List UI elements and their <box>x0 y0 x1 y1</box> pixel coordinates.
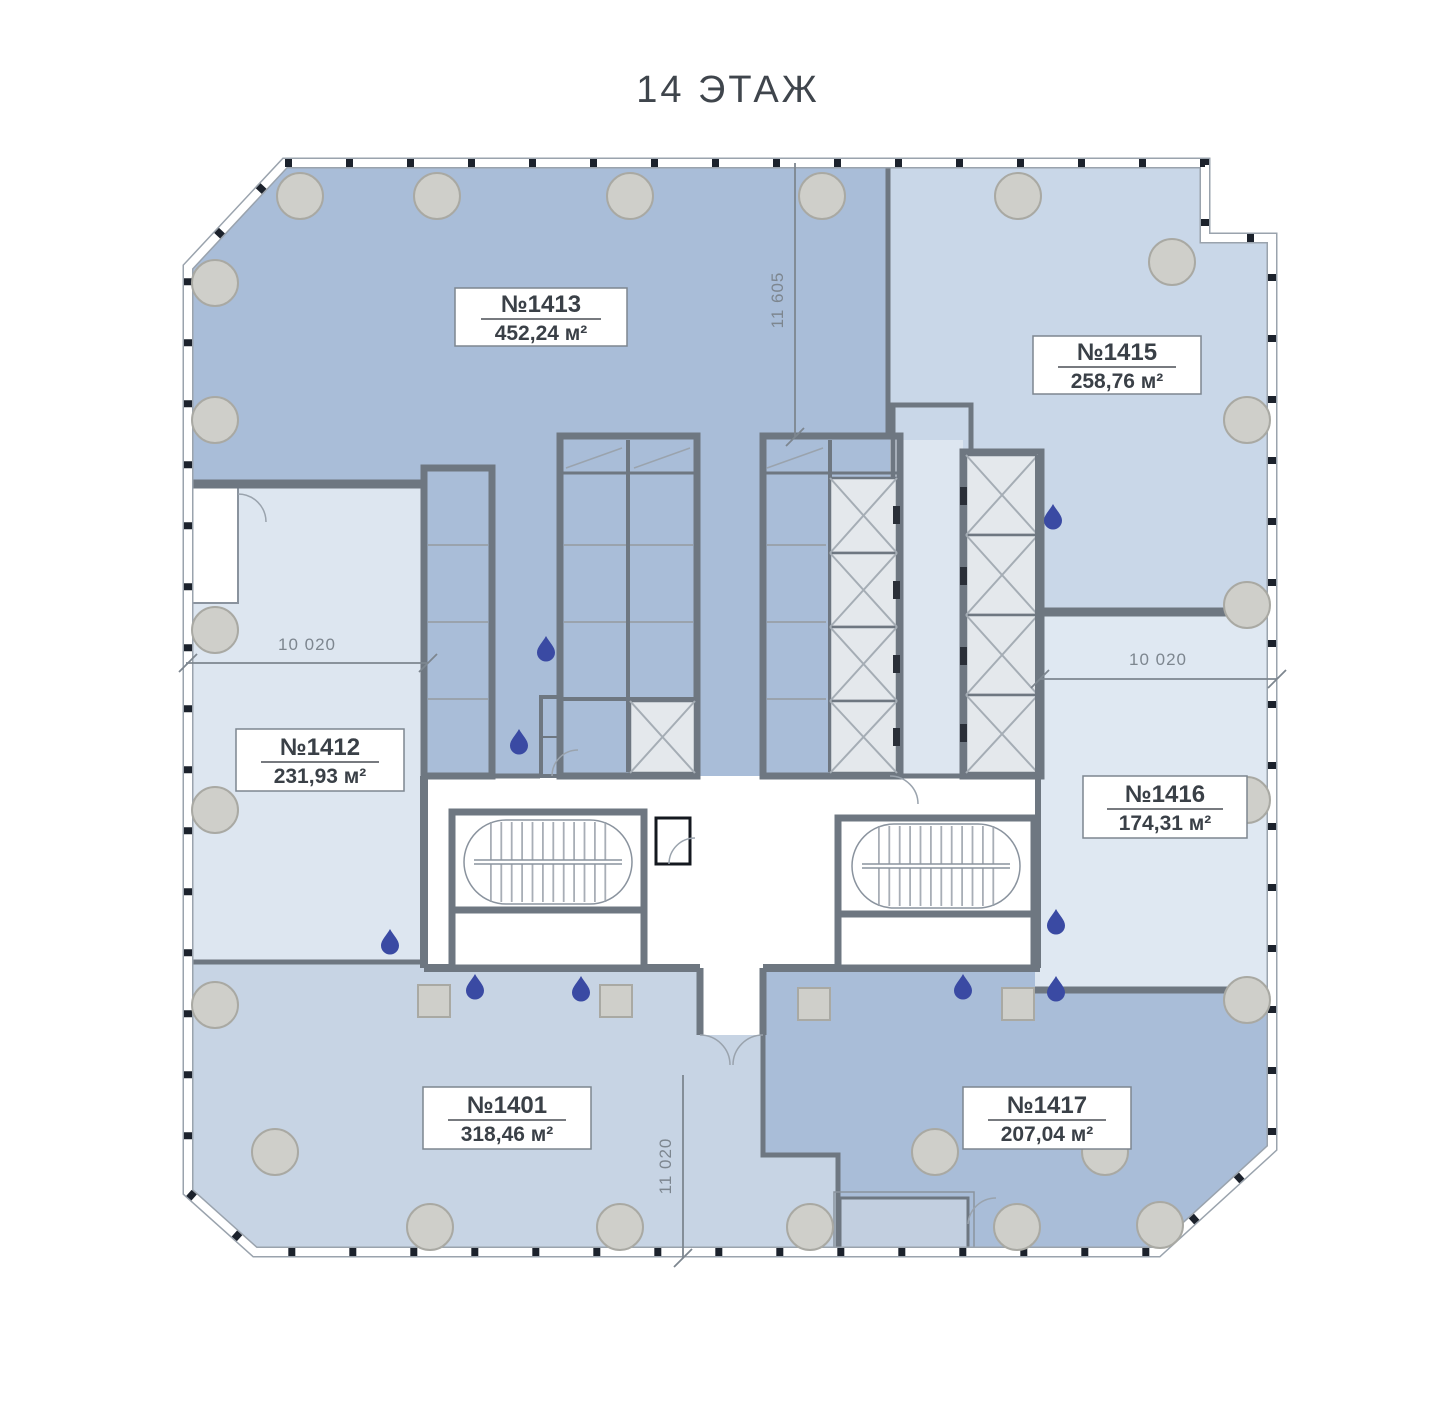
svg-text:№1412: №1412 <box>280 734 360 761</box>
stairwell-east <box>838 818 1034 914</box>
terrace-room <box>834 1192 974 1252</box>
column <box>799 173 845 219</box>
unit-label-1413[interactable]: №1413 452,24 м² <box>455 288 627 346</box>
column <box>252 1129 298 1175</box>
column <box>994 1204 1040 1250</box>
entrance-vestibule <box>700 968 763 1035</box>
column <box>1224 582 1270 628</box>
elevator-door <box>960 487 967 505</box>
dimension-right: 10 020 <box>1129 650 1187 669</box>
dimension-bottom: 11 020 <box>656 1138 675 1195</box>
page-title: 14 ЭТАЖ <box>636 69 820 111</box>
square-column <box>600 985 632 1017</box>
column <box>607 173 653 219</box>
column <box>192 397 238 443</box>
square-column <box>1002 988 1034 1020</box>
svg-text:№1417: №1417 <box>1007 1092 1087 1119</box>
column <box>192 260 238 306</box>
svg-text:452,24 м²: 452,24 м² <box>495 322 588 345</box>
elevator-door <box>893 655 900 673</box>
column <box>277 173 323 219</box>
svg-text:231,93 м²: 231,93 м² <box>274 765 367 788</box>
column <box>1149 239 1195 285</box>
dimension-top: 11 605 <box>768 272 787 329</box>
svg-text:174,31 м²: 174,31 м² <box>1119 812 1212 835</box>
square-column <box>418 985 450 1017</box>
column <box>192 787 238 833</box>
elevator-door <box>960 567 967 585</box>
column <box>912 1129 958 1175</box>
column <box>407 1204 453 1250</box>
elevator-door <box>893 506 900 524</box>
unit-label-1401[interactable]: №1401 318,46 м² <box>423 1087 591 1149</box>
svg-text:№1416: №1416 <box>1125 781 1205 808</box>
svg-text:258,76 м²: 258,76 м² <box>1071 370 1164 393</box>
column <box>1137 1202 1183 1248</box>
column <box>1224 977 1270 1023</box>
column <box>414 173 460 219</box>
svg-text:№1415: №1415 <box>1077 339 1157 366</box>
west-balcony <box>190 487 238 603</box>
column <box>597 1204 643 1250</box>
unit-label-1412[interactable]: №1412 231,93 м² <box>236 729 404 791</box>
stair-room-west <box>452 910 644 968</box>
elevator-door <box>960 647 967 665</box>
elevator-door <box>960 724 967 742</box>
dimension-left: 10 020 <box>278 635 336 654</box>
column <box>1224 397 1270 443</box>
floorplan-page: 14 ЭТАЖ <box>0 0 1440 1426</box>
column <box>192 982 238 1028</box>
column <box>787 1204 833 1250</box>
shaft-box <box>656 818 690 864</box>
stair-room-east <box>838 914 1034 968</box>
elevator-door <box>893 728 900 746</box>
elevator-door <box>893 581 900 599</box>
svg-text:№1401: №1401 <box>467 1092 547 1119</box>
column <box>995 173 1041 219</box>
svg-text:207,04 м²: 207,04 м² <box>1001 1123 1094 1146</box>
svg-text:№1413: №1413 <box>501 291 581 318</box>
svg-text:318,46 м²: 318,46 м² <box>461 1123 554 1146</box>
square-column <box>798 988 830 1020</box>
unit-label-1415[interactable]: №1415 258,76 м² <box>1033 336 1201 394</box>
column <box>192 607 238 653</box>
unit-label-1417[interactable]: №1417 207,04 м² <box>963 1087 1131 1149</box>
unit-label-1416[interactable]: №1416 174,31 м² <box>1083 776 1247 838</box>
